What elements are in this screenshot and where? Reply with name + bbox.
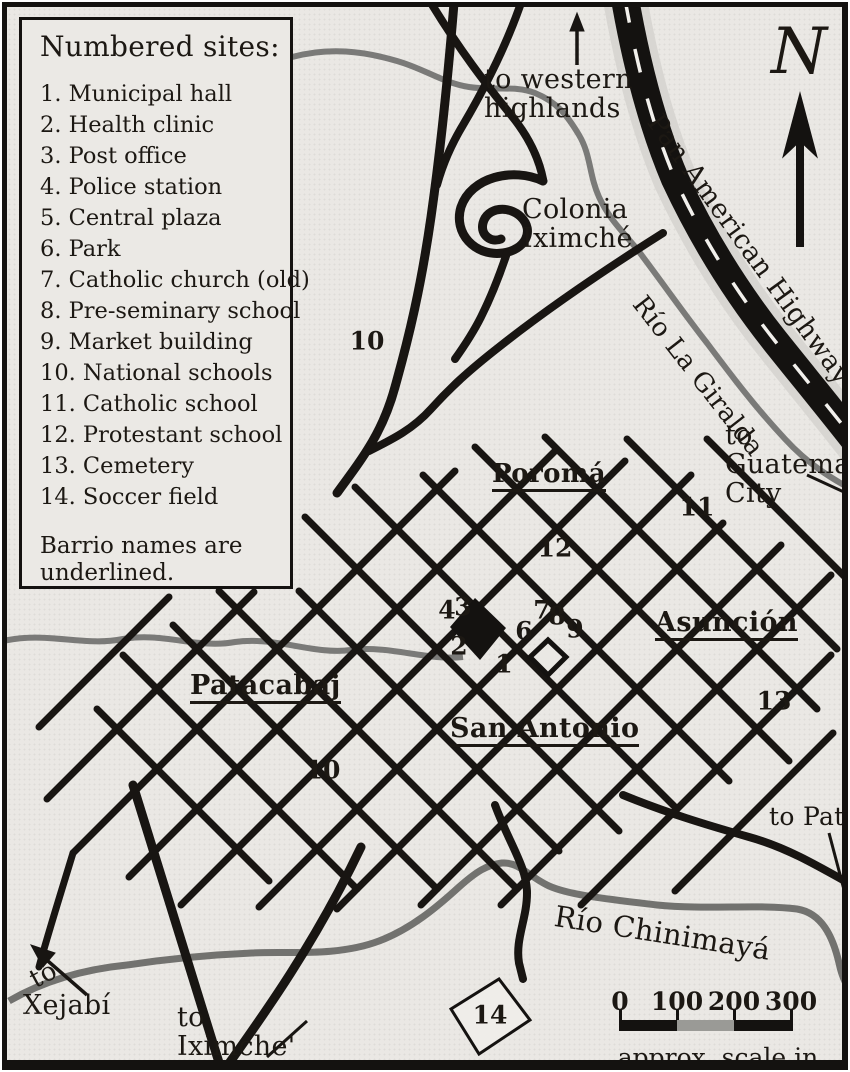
legend-item: 12. Protestant school <box>40 420 282 451</box>
scale-bar-segment <box>734 1020 791 1031</box>
north-road <box>337 7 454 493</box>
colonia-loop-road <box>459 175 543 254</box>
legend-item: 13. Cemetery <box>40 451 282 482</box>
map-page: Numbered sites: 1. Municipal hall2. Heal… <box>0 0 850 1072</box>
scale-bar-segment <box>677 1020 734 1031</box>
legend-item: 11. Catholic school <box>40 389 282 420</box>
legend-item: 7. Catholic church (old) <box>40 265 282 296</box>
legend-item: 3. Post office <box>40 141 282 172</box>
legend-item: 1. Municipal hall <box>40 79 282 110</box>
patzu-road <box>623 795 848 889</box>
map-frame: Numbered sites: 1. Municipal hall2. Heal… <box>2 2 848 1070</box>
legend-item: 8. Pre-seminary school <box>40 296 282 327</box>
legend-item: 10. National schools <box>40 358 282 389</box>
legend-item: 2. Health clinic <box>40 110 282 141</box>
scale-bar-segment <box>620 1020 677 1031</box>
legend-box: Numbered sites: 1. Municipal hall2. Heal… <box>19 17 293 589</box>
highlands-arrowhead <box>570 13 584 31</box>
northeast-boundary-road <box>369 233 663 451</box>
legend-note: Barrio names are underlined. <box>40 533 270 587</box>
legend-item: 14. Soccer field <box>40 482 282 513</box>
legend-list: 1. Municipal hall2. Health clinic3. Post… <box>40 79 282 513</box>
legend-item: 6. Park <box>40 234 282 265</box>
southwest-road-b <box>225 847 361 1069</box>
scale-bar: approx. scale in meters 0100200300 <box>593 987 848 1070</box>
scale-caption: approx. scale in meters <box>593 1043 843 1070</box>
iximche-slash-road <box>267 1021 307 1057</box>
legend-item: 5. Central plaza <box>40 203 282 234</box>
patzu-branch-road <box>829 833 847 901</box>
soccer-field-diamond <box>451 979 530 1054</box>
stream-river <box>7 637 463 657</box>
compass-north-letter: N <box>771 15 827 89</box>
legend-item: 4. Police station <box>40 172 282 203</box>
compass-arrow <box>783 93 817 247</box>
central-plaza-block <box>450 598 506 660</box>
legend-title: Numbered sites: <box>40 30 282 63</box>
legend-item: 9. Market building <box>40 327 282 358</box>
